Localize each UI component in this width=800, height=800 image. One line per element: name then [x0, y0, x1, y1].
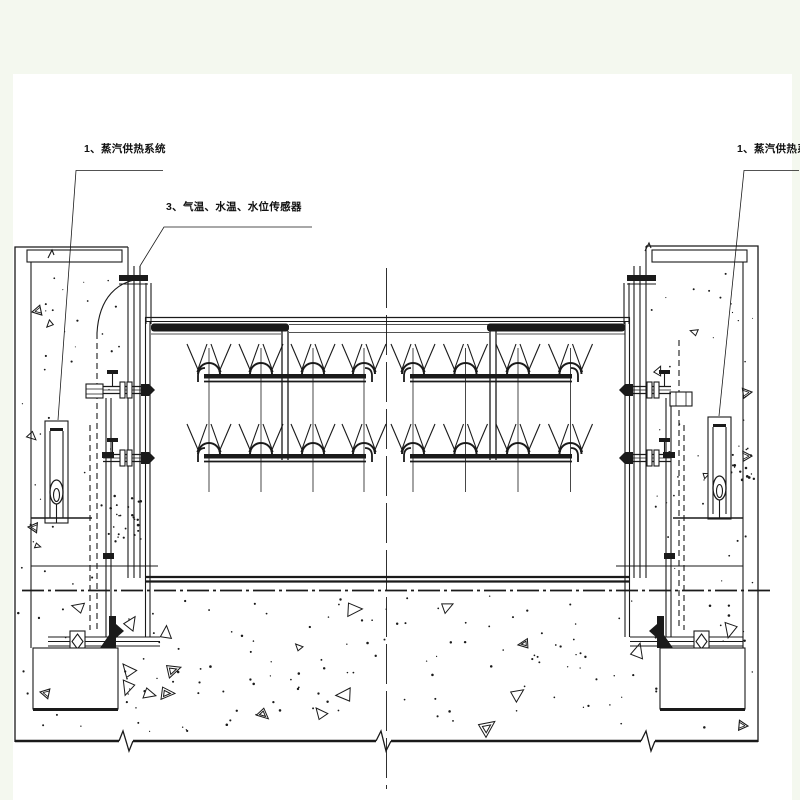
drawing-page: 1、蒸汽供热系统 3、气温、水温、水位传感器 1、蒸汽供热系统 [0, 0, 800, 800]
label-steam-system-right: 1、蒸汽供热系统 [737, 142, 800, 155]
label-steam-system-left: 1、蒸汽供热系统 [84, 142, 166, 155]
section-drawing: 1、蒸汽供热系统 3、气温、水温、水位传感器 1、蒸汽供热系统 [0, 0, 800, 800]
steam-heater-left [45, 421, 68, 523]
sump-pit-left [33, 648, 118, 709]
header-pipe-left [151, 324, 289, 332]
label-sensors: 3、气温、水温、水位传感器 [166, 200, 302, 213]
left-pier-cap [27, 250, 122, 262]
header-pipe-right [487, 324, 625, 332]
sump-pit-right [660, 648, 745, 709]
steam-heater-right [708, 417, 731, 519]
right-pier-cap [652, 250, 747, 262]
steam-pipe-stub-right [627, 275, 656, 281]
